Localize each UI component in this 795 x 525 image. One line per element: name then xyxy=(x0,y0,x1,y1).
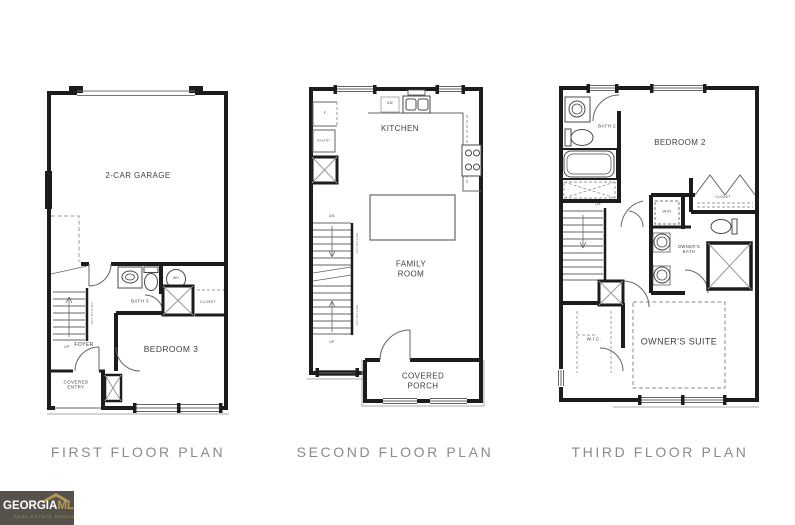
owners-toilet-icon xyxy=(711,219,737,234)
range-icon xyxy=(462,145,481,176)
wic-shelving xyxy=(577,311,611,373)
stairs-up-label: UP xyxy=(329,340,335,344)
stairs-icon xyxy=(51,266,87,340)
owners-bath-label: OWNER'S BATH xyxy=(678,244,700,254)
shower-icon xyxy=(163,286,193,315)
third-floor-plan: BATH 2 BEDROOM 2 DN W/D CLOSET OWNER'S B… xyxy=(555,83,765,423)
toilet-icon xyxy=(144,267,158,291)
stairs-up-label: UP xyxy=(64,345,70,349)
garage-label: 2-CAR GARAGE xyxy=(105,171,170,181)
second-floor-caption: SECOND FLOOR PLAN xyxy=(295,444,495,460)
owners-bath-sink-icons xyxy=(653,233,670,285)
floor-plan-sheet: 2-CAR GARAGE BATH 3 WH CLOSET BEDROOM 3 … xyxy=(0,0,795,525)
garage-door-icon xyxy=(77,91,195,96)
chase-icon xyxy=(312,157,337,183)
sink-icon xyxy=(118,267,142,288)
stairs-icon xyxy=(313,223,351,334)
tub-icon xyxy=(559,149,617,179)
second-floor-plan: KITCHEN DW F PANTRY DN UP OPT RAILING OP… xyxy=(305,83,485,418)
family-room-label: FAMILY ROOM xyxy=(396,259,426,278)
bath2-sink-icon xyxy=(565,97,590,122)
window-icons xyxy=(317,87,467,404)
pantry-label: PANTRY xyxy=(317,139,331,142)
kitchen-island xyxy=(370,195,455,240)
logo-brand: GEORGIAMLS™ xyxy=(3,500,74,512)
bifold-closet-doors xyxy=(695,175,755,195)
wall-pilasters xyxy=(45,86,203,209)
dishwasher-label: DW xyxy=(387,102,393,106)
water-heater-label: WH xyxy=(173,277,179,281)
covered-entry-label: COVERED ENTRY xyxy=(63,380,88,391)
logo-suffix: MLS xyxy=(57,500,74,512)
door-arcs xyxy=(380,330,410,360)
bedroom2-label: BEDROOM 2 xyxy=(654,138,706,148)
opt-railing-label-lower: OPT RAILING xyxy=(355,305,359,326)
walls xyxy=(47,93,228,408)
entry-closet-icon xyxy=(105,375,121,401)
third-floor-drawing xyxy=(555,83,765,423)
chase-icon xyxy=(599,281,623,305)
owners-suite-label: OWNER'S SUITE xyxy=(641,337,717,348)
fridge-label: F xyxy=(324,111,326,115)
linen-closet-icon xyxy=(564,182,615,198)
stairs-dn-label: DN xyxy=(595,202,601,206)
first-floor-drawing xyxy=(43,83,233,418)
overhead-dashed-line xyxy=(51,216,79,262)
opt-railing-label-upper: OPT RAILING xyxy=(355,233,359,254)
kitchen-label: KITCHEN xyxy=(381,124,419,134)
covered-porch-label: COVERED PORCH xyxy=(402,371,444,390)
bath2-toilet-icon xyxy=(565,129,593,146)
owners-shower-icon xyxy=(708,243,751,289)
window-icons xyxy=(55,405,221,412)
logo-name: GEORGIA xyxy=(3,500,57,512)
stairs-icon xyxy=(563,211,603,280)
first-floor-caption: FIRST FLOOR PLAN xyxy=(33,444,243,460)
bath3-label: BATH 3 xyxy=(131,298,149,303)
logo-tagline: REAL ESTATE SERVICES xyxy=(14,514,74,519)
third-floor-caption: THIRD FLOOR PLAN xyxy=(550,444,770,460)
closet-label: CLOSET xyxy=(200,300,216,304)
wic-label: W.I.C. xyxy=(587,336,602,341)
washer-dryer-label: W/D xyxy=(663,210,672,215)
stairs-dn-label: DN xyxy=(329,214,335,218)
first-floor-plan: 2-CAR GARAGE BATH 3 WH CLOSET BEDROOM 3 … xyxy=(43,83,233,418)
bedroom3-label: BEDROOM 3 xyxy=(144,344,199,354)
opt-railing-label: OPT RAILING xyxy=(90,302,94,324)
foyer-label: FOYER xyxy=(74,342,93,348)
kitchen-sink-icon xyxy=(403,90,430,113)
closet-label: CLOSET xyxy=(715,196,730,200)
closet-rod xyxy=(697,203,753,207)
georgia-mls-logo: GEORGIAMLS™ REAL ESTATE SERVICES xyxy=(0,491,74,525)
bath2-label: BATH 2 xyxy=(598,123,616,128)
